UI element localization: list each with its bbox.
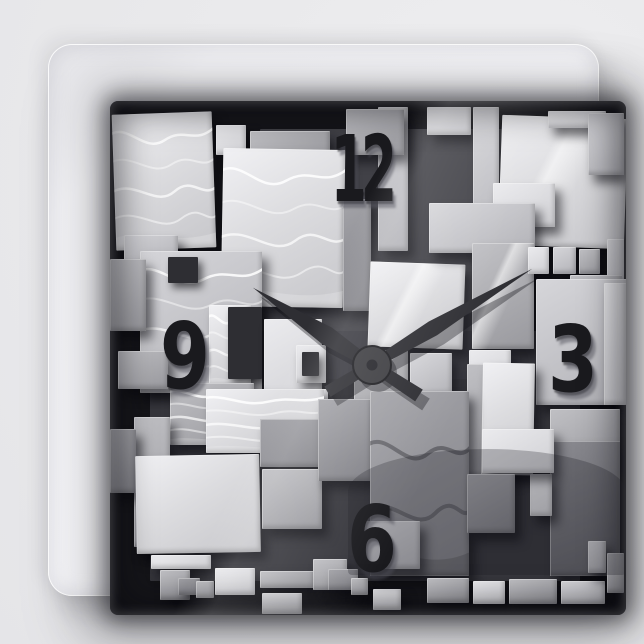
minute-hand [323,262,536,399]
clock-hands [110,101,626,615]
clock-face-collage: 12 3 6 9 [110,101,626,615]
center-hub-dot [367,360,378,371]
minute-hand-shadow [330,271,543,408]
product-photo-background: 12 3 6 9 [0,0,644,644]
clock-frame: 12 3 6 9 [48,44,599,596]
